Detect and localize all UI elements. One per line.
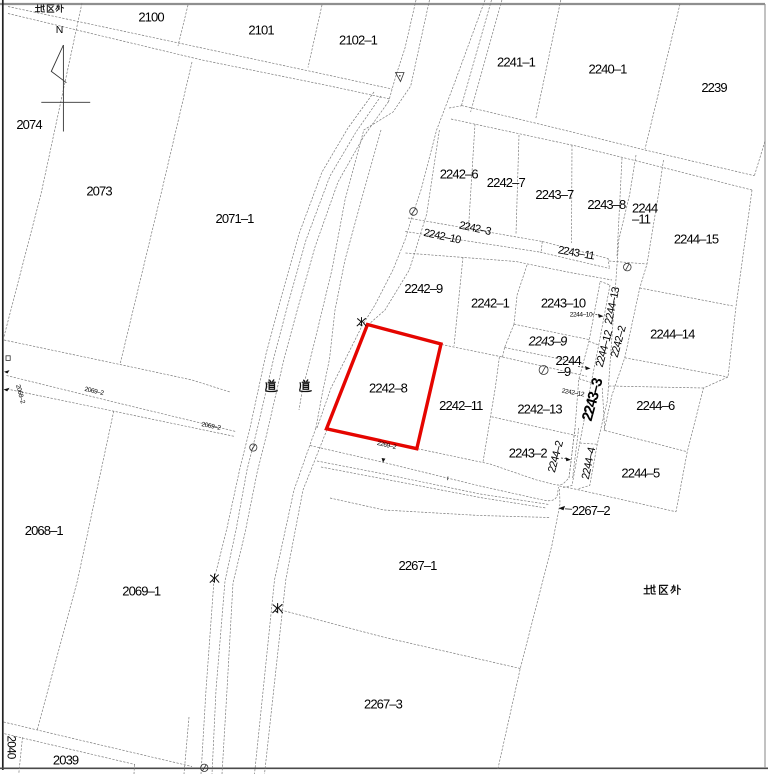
- svg-text:2244–14: 2244–14: [650, 327, 695, 342]
- svg-text:2267–2: 2267–2: [572, 503, 611, 518]
- svg-text:2267–3: 2267–3: [364, 697, 403, 712]
- svg-text:2243–10: 2243–10: [541, 295, 586, 310]
- svg-text:N: N: [56, 24, 64, 36]
- svg-text:2244–5: 2244–5: [621, 466, 660, 481]
- svg-text:2242–13: 2242–13: [517, 402, 562, 417]
- svg-text:2102–1: 2102–1: [339, 33, 378, 48]
- svg-text:2069–1: 2069–1: [122, 584, 161, 599]
- svg-text:2243–7: 2243–7: [535, 187, 574, 202]
- svg-text:2239: 2239: [701, 80, 727, 95]
- svg-text:2100: 2100: [138, 10, 164, 25]
- svg-text:2242–6: 2242–6: [440, 167, 479, 182]
- svg-text:2242–11: 2242–11: [439, 398, 483, 413]
- svg-text:2039: 2039: [53, 752, 79, 767]
- svg-text:2244–15: 2244–15: [674, 232, 719, 247]
- svg-text:2243–8: 2243–8: [587, 197, 626, 212]
- svg-text:2242–8: 2242–8: [369, 381, 408, 396]
- svg-text:2244–10: 2244–10: [570, 311, 593, 318]
- svg-text:2242–7: 2242–7: [487, 175, 526, 190]
- svg-text:2242–1: 2242–1: [471, 295, 510, 310]
- svg-text:2241–1: 2241–1: [497, 55, 536, 70]
- svg-text:2267–1: 2267–1: [399, 558, 438, 573]
- svg-text:2074: 2074: [16, 117, 42, 132]
- svg-text:2068–1: 2068–1: [25, 523, 64, 538]
- svg-text:2073: 2073: [86, 184, 112, 199]
- svg-text:2240–1: 2240–1: [589, 62, 628, 77]
- svg-text:–11: –11: [632, 212, 651, 227]
- svg-text:2101: 2101: [248, 23, 274, 38]
- svg-text:2243–2: 2243–2: [509, 446, 548, 461]
- svg-text:2244–6: 2244–6: [636, 398, 675, 413]
- svg-text:–9: –9: [558, 364, 571, 379]
- svg-text:2071–1: 2071–1: [216, 211, 255, 226]
- svg-text:2243–9: 2243–9: [528, 334, 569, 349]
- svg-text:2040: 2040: [5, 735, 19, 759]
- svg-text:2242–9: 2242–9: [404, 281, 443, 296]
